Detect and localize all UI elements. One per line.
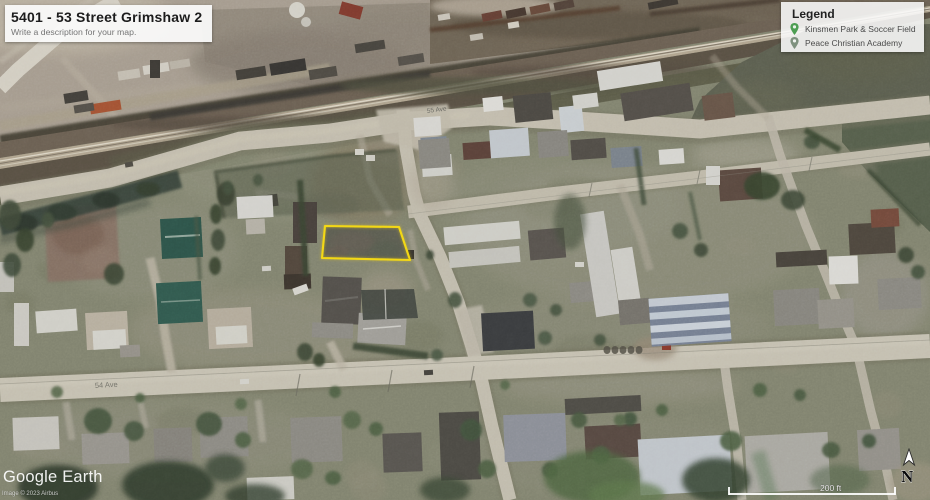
svg-text:N: N [901,467,914,486]
svg-text:200 ft: 200 ft [820,483,842,493]
